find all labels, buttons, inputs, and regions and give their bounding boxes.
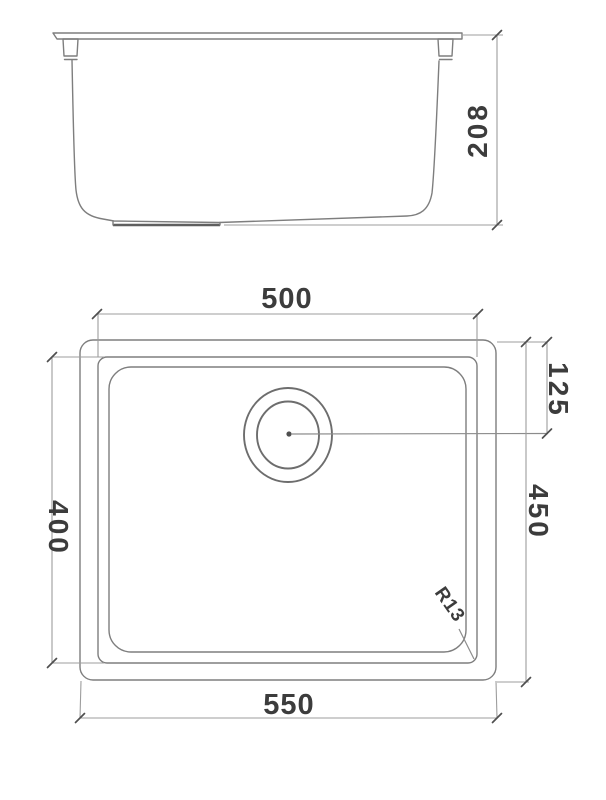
bowl-bottom-rect xyxy=(109,367,466,652)
dimension-outer-width-550: 550 xyxy=(76,681,502,723)
sink-technical-drawing: 208 500 xyxy=(0,0,606,800)
dimension-drain-offset-125: 125 xyxy=(543,338,575,439)
drain-center-leader-line xyxy=(291,434,548,435)
dim-label-height: 208 xyxy=(462,102,493,158)
dim-label-inner-depth: 400 xyxy=(43,500,74,556)
side-elevation-view: 208 xyxy=(53,31,503,230)
sink-bowl-profile xyxy=(72,60,439,223)
mounting-clip-left xyxy=(63,39,78,56)
dim-label-drain-offset: 125 xyxy=(543,362,574,418)
outer-rim-rect xyxy=(80,340,496,680)
radius-label: R13 xyxy=(430,583,469,626)
bowl-top-rect xyxy=(98,357,477,663)
dimension-height-208: 208 xyxy=(224,31,503,230)
sink-rim-profile xyxy=(53,33,462,39)
plan-view: 500 550 400 xyxy=(43,283,574,723)
dim-label-outer-depth: 450 xyxy=(523,484,554,540)
drawing-canvas: 208 500 xyxy=(0,0,606,800)
mounting-clip-right xyxy=(438,39,453,56)
extension-line-right xyxy=(496,681,497,718)
extension-line-left xyxy=(80,681,81,718)
dimension-inner-width-500: 500 xyxy=(93,283,483,357)
drain xyxy=(244,388,548,482)
drain-center-mark xyxy=(286,431,291,436)
dim-label-inner-width: 500 xyxy=(261,283,312,315)
dimension-inner-depth-400: 400 xyxy=(43,353,104,668)
callout-corner-radius-r13: R13 xyxy=(430,583,474,659)
dim-label-outer-width: 550 xyxy=(263,689,314,721)
